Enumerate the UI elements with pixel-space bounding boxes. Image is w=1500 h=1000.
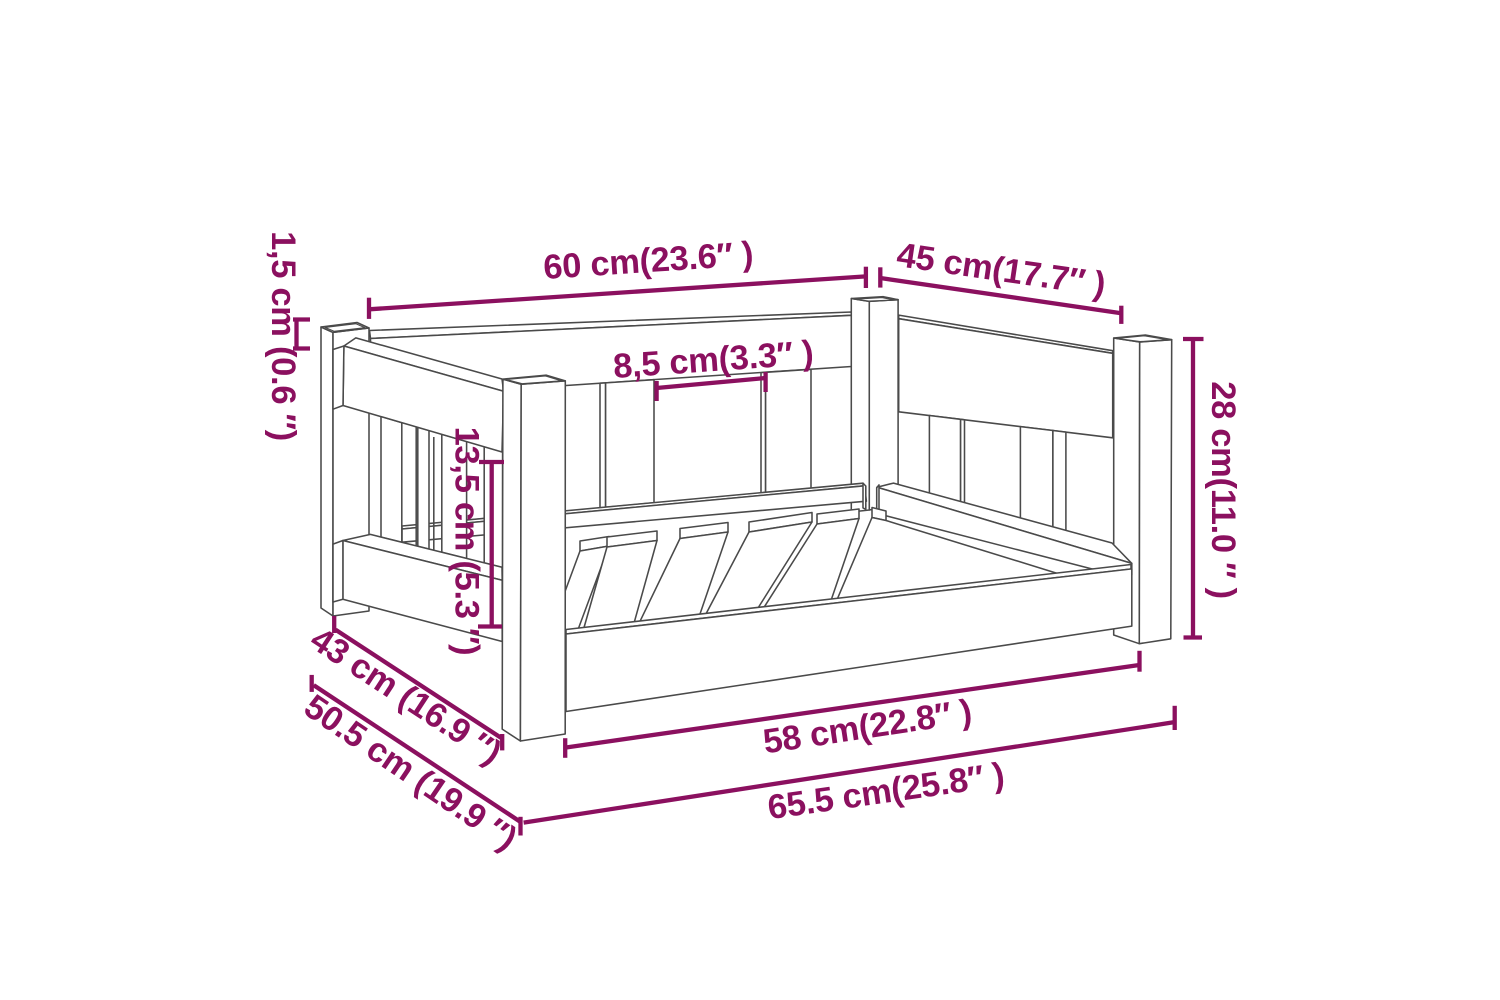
svg-text:13,5 cm (5.3 ″): 13,5 cm (5.3 ″) [448,427,486,656]
svg-text:1,5 cm (0.6 ″): 1,5 cm (0.6 ″) [264,231,302,441]
svg-text:28 cm(11.0 ″ ): 28 cm(11.0 ″ ) [1204,381,1242,599]
